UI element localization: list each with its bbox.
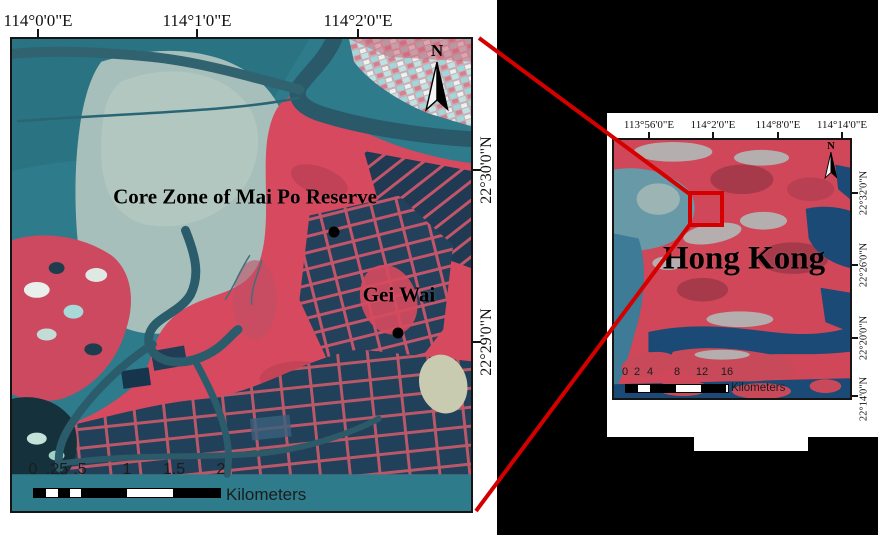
scale-tick-label: 1 bbox=[123, 461, 132, 479]
latitude-label: 22°14'0"N bbox=[859, 377, 870, 421]
axis-tick bbox=[852, 264, 858, 266]
scale-unit-label: Kilometers bbox=[731, 382, 785, 394]
latitude-label: 22°20'0"N bbox=[859, 316, 870, 360]
axis-tick bbox=[473, 341, 481, 343]
scale-bar-inset: 0 2 4 8 12 16 Kilometers bbox=[619, 366, 829, 400]
scale-tick-label: 8 bbox=[674, 366, 680, 378]
longitude-label: 114°1'0"E bbox=[162, 11, 231, 31]
axis-tick bbox=[777, 132, 779, 138]
longitude-label: 114°0'0"E bbox=[3, 11, 72, 31]
scale-tick-label: 2 bbox=[217, 461, 226, 479]
axis-tick bbox=[852, 395, 858, 397]
latitude-label: 22°26'0"N bbox=[859, 243, 870, 287]
scale-tick-label: 2 bbox=[634, 366, 640, 378]
region-label: Hong Kong bbox=[663, 241, 825, 278]
satellite-image-mai-po bbox=[12, 39, 471, 511]
scale-tick-label: .5 bbox=[73, 461, 86, 479]
scale-tick-label: 0 bbox=[622, 366, 628, 378]
axis-tick bbox=[37, 29, 39, 37]
scale-tick-label: 16 bbox=[721, 366, 733, 378]
longitude-label: 114°2'0"E bbox=[691, 119, 736, 131]
north-arrow-inset: N bbox=[820, 140, 842, 184]
scale-bar-segments bbox=[625, 384, 729, 393]
longitude-label: 114°2'0"E bbox=[323, 11, 392, 31]
longitude-label: 114°14'0"E bbox=[817, 119, 867, 131]
axis-tick bbox=[473, 169, 481, 171]
gei-wai-marker bbox=[393, 328, 404, 339]
scale-unit-label: Kilometers bbox=[226, 485, 306, 505]
scale-tick-label: 0 bbox=[29, 461, 38, 479]
north-arrow-main: N bbox=[420, 41, 454, 117]
main-map: Core Zone of Mai Po Reserve Gei Wai N 0 … bbox=[10, 37, 473, 513]
scale-tick-label: 1.5 bbox=[163, 461, 185, 479]
north-arrow-icon bbox=[422, 62, 452, 112]
figure-canvas: Core Zone of Mai Po Reserve Gei Wai N 0 … bbox=[0, 0, 878, 535]
core-zone-label: Core Zone of Mai Po Reserve bbox=[113, 185, 377, 210]
longitude-label: 113°56'0"E bbox=[624, 119, 674, 131]
axis-tick bbox=[852, 337, 858, 339]
inset-map: Hong Kong N 0 2 4 8 12 16 Kilometers bbox=[612, 138, 852, 400]
axis-tick bbox=[196, 29, 198, 37]
axis-tick bbox=[841, 132, 843, 138]
scale-bar-segments bbox=[33, 488, 221, 498]
axis-tick bbox=[357, 29, 359, 37]
longitude-label: 114°8'0"E bbox=[756, 119, 801, 131]
north-arrow-icon bbox=[823, 152, 839, 179]
scale-tick-label: 12 bbox=[696, 366, 708, 378]
axis-tick bbox=[852, 192, 858, 194]
scale-tick-label: 4 bbox=[647, 366, 653, 378]
scale-bar-main: 0 .25 .5 1 1.5 2 Kilometers bbox=[26, 461, 362, 505]
gei-wai-label: Gei Wai bbox=[363, 283, 436, 308]
axis-tick bbox=[712, 132, 714, 138]
latitude-label: 22°32'0"N bbox=[859, 171, 870, 215]
axis-tick bbox=[648, 132, 650, 138]
caption-tab bbox=[694, 437, 808, 451]
scale-tick-label: .25 bbox=[46, 461, 68, 479]
north-label: N bbox=[820, 140, 842, 152]
north-label: N bbox=[420, 41, 454, 61]
core-zone-marker bbox=[329, 227, 340, 238]
